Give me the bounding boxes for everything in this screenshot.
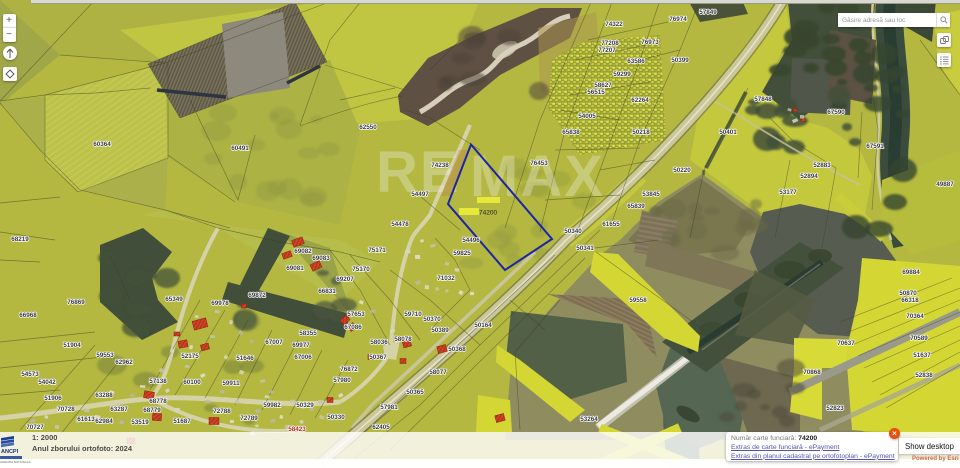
svg-text:52823: 52823 <box>826 405 844 412</box>
svg-text:59911: 59911 <box>222 380 240 387</box>
svg-text:66831: 66831 <box>318 288 336 295</box>
svg-text:53845: 53845 <box>642 191 660 198</box>
svg-text:65838: 65838 <box>562 129 580 136</box>
svg-text:52883: 52883 <box>813 162 831 169</box>
svg-text:69207: 69207 <box>336 276 354 283</box>
svg-text:68779: 68779 <box>143 407 161 414</box>
svg-text:70589: 70589 <box>910 335 928 342</box>
svg-text:59553: 59553 <box>96 352 114 359</box>
svg-text:50401: 50401 <box>719 129 737 136</box>
svg-text:59982: 59982 <box>263 402 281 409</box>
svg-text:60491: 60491 <box>231 145 249 152</box>
svg-text:66968: 66968 <box>19 312 37 319</box>
svg-text:53177: 53177 <box>779 189 797 196</box>
svg-text:62405: 62405 <box>372 424 390 431</box>
svg-text:63288: 63288 <box>95 392 113 399</box>
svg-text:71032: 71032 <box>437 275 455 282</box>
svg-text:49887: 49887 <box>936 181 954 188</box>
svg-text:61613: 61613 <box>77 416 95 423</box>
svg-text:60364: 60364 <box>93 141 111 148</box>
svg-text:69083: 69083 <box>312 255 330 262</box>
svg-text:50399: 50399 <box>671 57 689 64</box>
svg-text:50365: 50365 <box>406 389 424 396</box>
svg-text:69884: 69884 <box>902 269 920 276</box>
svg-text:57980: 57980 <box>333 377 351 384</box>
svg-text:51646: 51646 <box>236 355 254 362</box>
svg-text:69081: 69081 <box>286 265 304 272</box>
svg-text:68778: 68778 <box>149 398 167 405</box>
svg-text:59825: 59825 <box>453 250 471 257</box>
svg-text:77208: 77208 <box>601 40 619 47</box>
svg-text:70364: 70364 <box>906 313 924 320</box>
svg-text:62264: 62264 <box>631 97 649 104</box>
svg-text:75171: 75171 <box>368 247 386 254</box>
svg-text:67591: 67591 <box>866 143 884 150</box>
svg-text:57849: 57849 <box>699 9 717 16</box>
svg-text:68219: 68219 <box>11 236 29 243</box>
svg-text:50341: 50341 <box>576 245 594 252</box>
svg-text:58036: 58036 <box>370 339 388 346</box>
svg-text:52838: 52838 <box>915 372 933 379</box>
svg-text:56515: 56515 <box>587 89 605 96</box>
svg-text:61655: 61655 <box>602 221 620 228</box>
svg-text:54005: 54005 <box>578 113 596 120</box>
svg-text:63287: 63287 <box>110 406 128 413</box>
svg-text:76872: 76872 <box>340 366 358 373</box>
svg-text:50164: 50164 <box>474 322 492 329</box>
svg-text:57138: 57138 <box>149 378 167 385</box>
svg-text:67590: 67590 <box>827 109 845 116</box>
svg-text:62984: 62984 <box>95 418 113 425</box>
svg-text:54573: 54573 <box>21 371 39 378</box>
svg-text:50389: 50389 <box>431 327 449 334</box>
svg-text:50370: 50370 <box>423 316 441 323</box>
svg-text:50870: 50870 <box>899 290 917 297</box>
svg-text:53519: 53519 <box>131 419 149 426</box>
svg-text:58627: 58627 <box>594 82 612 89</box>
svg-text:59299: 59299 <box>613 71 631 78</box>
svg-text:50368: 50368 <box>448 346 466 353</box>
svg-text:58078: 58078 <box>394 336 412 343</box>
svg-text:76974: 76974 <box>669 16 687 23</box>
svg-text:57848: 57848 <box>754 96 772 103</box>
svg-text:62962: 62962 <box>115 359 133 366</box>
svg-text:60100: 60100 <box>183 379 201 386</box>
svg-text:74322: 74322 <box>605 21 623 28</box>
svg-text:58355: 58355 <box>299 330 317 337</box>
svg-text:59558: 59558 <box>629 297 647 304</box>
svg-text:50330: 50330 <box>327 414 345 421</box>
svg-text:70868: 70868 <box>803 369 821 376</box>
svg-text:72788: 72788 <box>213 408 231 415</box>
svg-text:70637: 70637 <box>837 340 855 347</box>
svg-text:69872: 69872 <box>248 292 266 299</box>
svg-text:69978: 69978 <box>211 300 229 307</box>
svg-text:51637: 51637 <box>913 352 931 359</box>
svg-text:66318: 66318 <box>901 297 919 304</box>
svg-text:54478: 54478 <box>391 221 409 228</box>
svg-text:65839: 65839 <box>627 203 645 210</box>
svg-text:67007: 67007 <box>265 339 283 346</box>
svg-text:76453: 76453 <box>530 160 548 167</box>
svg-text:62550: 62550 <box>359 124 377 131</box>
svg-text:50329: 50329 <box>296 402 314 409</box>
svg-text:52894: 52894 <box>800 173 818 180</box>
svg-text:75170: 75170 <box>352 266 370 273</box>
svg-text:54042: 54042 <box>38 379 56 386</box>
svg-text:67006: 67006 <box>294 354 312 361</box>
svg-text:50340: 50340 <box>564 228 582 235</box>
svg-text:69082: 69082 <box>294 248 312 255</box>
svg-text:50367: 50367 <box>369 354 387 361</box>
svg-text:58077: 58077 <box>429 369 447 376</box>
svg-text:65349: 65349 <box>165 296 183 303</box>
svg-text:77207: 77207 <box>598 47 616 54</box>
svg-text:76973: 76973 <box>641 39 659 46</box>
svg-text:51904: 51904 <box>63 342 81 349</box>
svg-text:51687: 51687 <box>173 418 191 425</box>
svg-text:70728: 70728 <box>57 406 75 413</box>
svg-text:63586: 63586 <box>627 58 645 65</box>
svg-text:57981: 57981 <box>380 404 398 411</box>
svg-text:54496: 54496 <box>462 237 480 244</box>
svg-text:51906: 51906 <box>44 395 62 402</box>
svg-text:69977: 69977 <box>292 342 310 349</box>
svg-text:76869: 76869 <box>67 299 85 306</box>
svg-text:72789: 72789 <box>240 415 258 422</box>
svg-text:50218: 50218 <box>632 129 650 136</box>
svg-text:74238: 74238 <box>431 162 449 169</box>
svg-text:67086: 67086 <box>344 324 362 331</box>
svg-text:57653: 57653 <box>347 311 365 318</box>
svg-text:52175: 52175 <box>181 353 199 360</box>
svg-text:59710: 59710 <box>404 311 422 318</box>
svg-text:50220: 50220 <box>673 167 691 174</box>
svg-text:54497: 54497 <box>411 191 429 198</box>
svg-text:70727: 70727 <box>26 424 44 431</box>
svg-text:53264: 53264 <box>580 416 598 423</box>
svg-text:74200: 74200 <box>479 210 497 217</box>
